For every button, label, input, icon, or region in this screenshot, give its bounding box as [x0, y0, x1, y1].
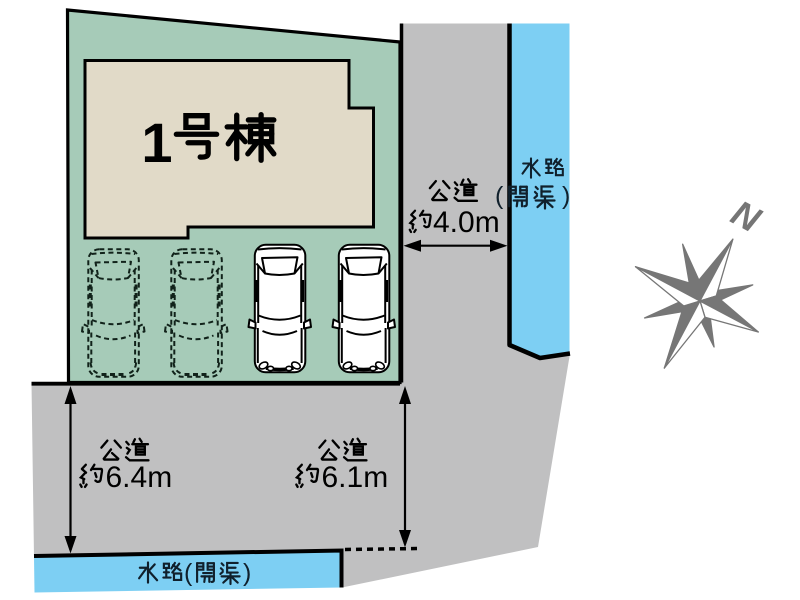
svg-text:): ) [243, 559, 251, 587]
svg-text:6.4m: 6.4m [106, 461, 173, 494]
svg-text:(: ( [495, 182, 504, 210]
svg-text:1: 1 [141, 111, 172, 174]
svg-text:): ) [562, 182, 570, 210]
svg-text:4.0m: 4.0m [433, 206, 500, 239]
svg-text:(: ( [184, 559, 193, 587]
svg-text:6.1m: 6.1m [322, 461, 389, 494]
